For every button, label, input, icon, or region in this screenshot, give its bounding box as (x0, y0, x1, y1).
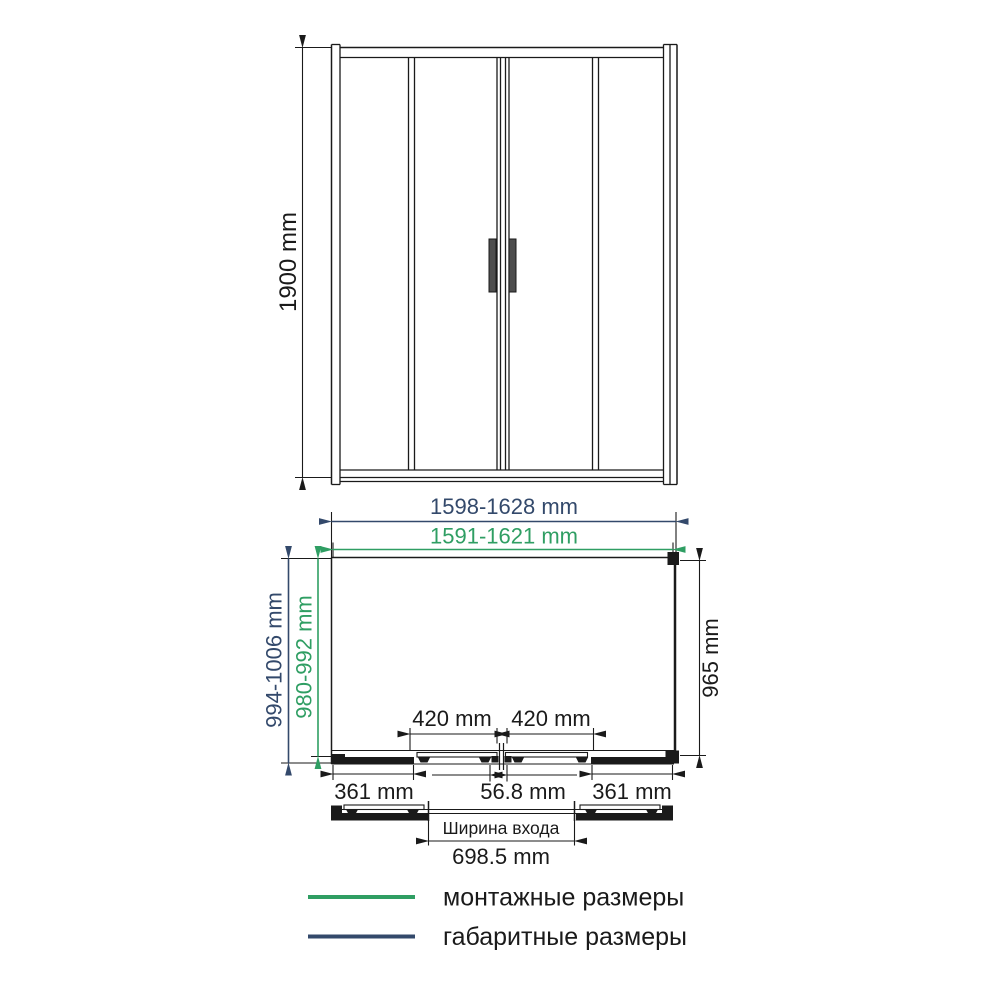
door-width-dimensions: 420 mm 420 mm (410, 706, 594, 750)
side-depth-label: 965 mm (698, 618, 723, 697)
left-end-profile (331, 806, 342, 821)
left-fixed-width-label: 361 mm (334, 779, 413, 804)
entrance-caption: Ширина входа (443, 818, 560, 838)
left-door-width-label: 420 mm (412, 706, 491, 731)
glass-panel-dividers (409, 58, 599, 471)
entrance-width-label: 698.5 mm (452, 844, 550, 869)
left-sliding-door (417, 753, 497, 758)
drawing-page: 1900 mm 1598-1628 mm (0, 0, 990, 990)
mounting-width-label: 1591-1621 mm (430, 524, 578, 549)
plan-depth-dimensions-left: 994-1006 mm 980-992 mm (262, 559, 339, 764)
plan-side-depth-dimension: 965 mm (680, 561, 723, 756)
shower-door-technical-drawing: 1900 mm 1598-1628 mm (0, 0, 990, 990)
front-height-dimension: 1900 mm (275, 48, 332, 478)
right-end-profile (662, 806, 673, 821)
right-door-handle-icon (509, 239, 516, 292)
left-stacked-door (344, 805, 424, 810)
left-track-section (331, 814, 428, 821)
legend-label-overall: габаритные размеры (443, 923, 687, 951)
plan-view (332, 552, 680, 770)
legend-label-mounting: монтажные размеры (443, 884, 684, 912)
right-fixed-width-label: 361 mm (592, 779, 671, 804)
front-height-label: 1900 mm (275, 212, 302, 312)
right-fixed-panel (591, 757, 673, 764)
center-gap-label: 56.8 mm (480, 779, 566, 804)
legend: монтажные размеры габаритные размеры (308, 884, 687, 952)
plan-mounting-width-dimension: 1591-1621 mm (333, 524, 673, 558)
right-door-width-label: 420 mm (511, 706, 590, 731)
right-track-section (576, 814, 673, 821)
right-stacked-door (580, 805, 660, 810)
overall-depth-label: 994-1006 mm (262, 592, 287, 728)
mounting-depth-label: 980-992 mm (292, 595, 317, 719)
overall-width-label: 1598-1628 mm (430, 494, 578, 519)
left-door-handle-icon (489, 239, 496, 292)
fixed-panel-dimensions: 361 mm 56.8 mm 361 mm (333, 765, 673, 804)
right-sliding-door (506, 753, 588, 758)
entrance-width-dimension: Ширина входа 698.5 mm (429, 818, 575, 869)
right-wall-profile-top-section (668, 552, 680, 565)
front-elevation-view (332, 45, 678, 485)
left-fixed-panel (334, 757, 414, 764)
